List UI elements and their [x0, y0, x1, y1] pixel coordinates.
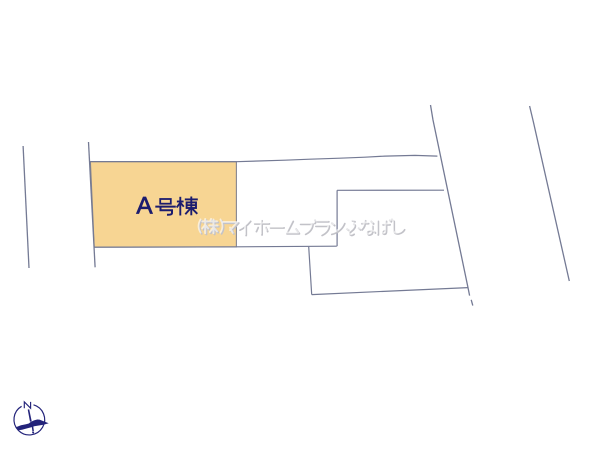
svg-text:A: A — [136, 192, 153, 219]
